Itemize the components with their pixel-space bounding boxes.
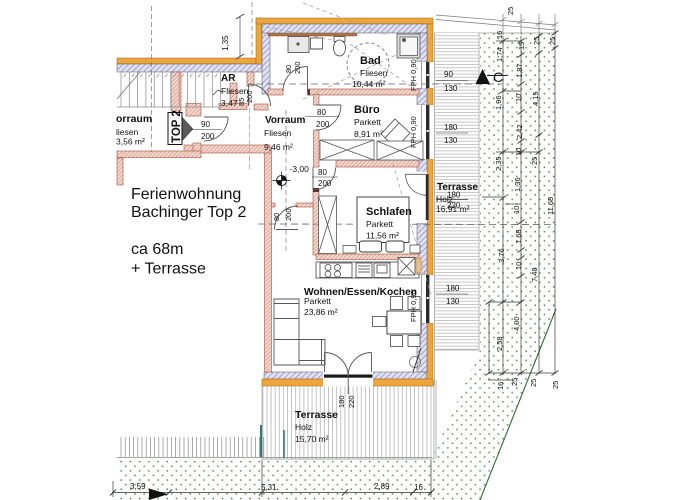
svg-text:2,58: 2,58 bbox=[495, 336, 504, 351]
svg-text:3,76: 3,76 bbox=[497, 248, 506, 263]
svg-text:10: 10 bbox=[514, 148, 523, 156]
svg-text:2,89: 2,89 bbox=[374, 482, 390, 491]
svg-text:90: 90 bbox=[201, 120, 210, 129]
svg-text:220: 220 bbox=[347, 395, 356, 408]
svg-text:4,15: 4,15 bbox=[531, 91, 540, 106]
svg-text:FPH 0,90: FPH 0,90 bbox=[409, 116, 418, 148]
svg-text:FPH 0,90: FPH 0,90 bbox=[409, 290, 418, 322]
svg-text:Ferienwohnung: Ferienwohnung bbox=[131, 186, 241, 203]
svg-text:180: 180 bbox=[446, 284, 460, 293]
svg-text:200: 200 bbox=[316, 120, 330, 129]
svg-text:25: 25 bbox=[530, 157, 539, 165]
svg-text:Fliesen: Fliesen bbox=[264, 128, 292, 138]
svg-text:Bad: Bad bbox=[360, 55, 381, 67]
svg-text:16: 16 bbox=[414, 483, 423, 492]
svg-text:Parkett: Parkett bbox=[354, 117, 382, 127]
svg-text:1,74: 1,74 bbox=[495, 47, 504, 62]
svg-text:10: 10 bbox=[514, 94, 523, 102]
svg-text:10: 10 bbox=[514, 262, 523, 270]
svg-text:2,42: 2,42 bbox=[515, 124, 524, 139]
svg-text:ca 68m: ca 68m bbox=[131, 241, 183, 258]
svg-text:Fliesen: Fliesen bbox=[360, 68, 388, 78]
svg-text:1,68: 1,68 bbox=[514, 229, 523, 244]
svg-text:90: 90 bbox=[444, 70, 453, 79]
svg-text:220: 220 bbox=[447, 201, 461, 210]
svg-text:200: 200 bbox=[293, 61, 302, 74]
svg-text:200: 200 bbox=[318, 179, 332, 188]
svg-text:15: 15 bbox=[517, 42, 526, 50]
svg-text:10: 10 bbox=[512, 206, 521, 214]
svg-text:8,91 m²: 8,91 m² bbox=[354, 129, 383, 139]
svg-text:1,36: 1,36 bbox=[513, 177, 522, 192]
svg-text:7,48: 7,48 bbox=[530, 267, 539, 282]
svg-text:4,00: 4,00 bbox=[512, 316, 521, 331]
svg-text:200: 200 bbox=[284, 208, 293, 221]
svg-text:Parkett: Parkett bbox=[366, 219, 394, 229]
svg-text:80: 80 bbox=[317, 108, 326, 117]
svg-text:25: 25 bbox=[551, 381, 560, 389]
svg-text:130: 130 bbox=[444, 84, 458, 93]
svg-text:Terrasse: Terrasse bbox=[295, 409, 338, 421]
svg-text:130: 130 bbox=[446, 297, 460, 306]
svg-text:180: 180 bbox=[337, 395, 346, 408]
svg-text:Parkett: Parkett bbox=[304, 296, 332, 306]
svg-text:80: 80 bbox=[284, 65, 293, 73]
svg-text:orraum: orraum bbox=[116, 113, 152, 125]
svg-text:2,35: 2,35 bbox=[494, 156, 503, 171]
svg-text:15,70 m²: 15,70 m² bbox=[295, 434, 329, 444]
svg-text:11,56 m²: 11,56 m² bbox=[366, 231, 399, 241]
svg-text:FPH 0,90: FPH 0,90 bbox=[409, 59, 418, 91]
svg-text:Holz: Holz bbox=[295, 422, 312, 432]
svg-text:1,87: 1,87 bbox=[515, 63, 524, 78]
svg-text:AR: AR bbox=[221, 73, 236, 84]
svg-text:130: 130 bbox=[444, 136, 458, 145]
svg-text:Bachinger Top 2: Bachinger Top 2 bbox=[131, 204, 246, 221]
svg-text:3,56 m²: 3,56 m² bbox=[116, 137, 145, 147]
svg-text:Schlafen: Schlafen bbox=[366, 206, 412, 218]
svg-text:25: 25 bbox=[506, 7, 515, 15]
svg-text:16: 16 bbox=[495, 31, 504, 39]
svg-text:80: 80 bbox=[318, 168, 327, 177]
svg-text:3,59: 3,59 bbox=[130, 482, 146, 491]
svg-text:+ Terrasse: + Terrasse bbox=[131, 261, 206, 278]
svg-text:1,35: 1,35 bbox=[221, 35, 230, 51]
svg-text:23,86 m²: 23,86 m² bbox=[304, 307, 338, 317]
svg-text:9,46 m²: 9,46 m² bbox=[264, 142, 293, 152]
svg-text:Büro: Büro bbox=[354, 104, 380, 116]
svg-text:200: 200 bbox=[245, 90, 254, 103]
svg-text:16: 16 bbox=[496, 382, 505, 390]
svg-text:80: 80 bbox=[272, 213, 281, 221]
svg-text:25: 25 bbox=[532, 37, 541, 45]
svg-text:liesen: liesen bbox=[116, 127, 138, 137]
svg-text:1,96: 1,96 bbox=[494, 95, 503, 110]
svg-text:5,31: 5,31 bbox=[261, 483, 277, 492]
svg-text:25: 25 bbox=[529, 379, 538, 387]
svg-text:3,47: 3,47 bbox=[221, 98, 238, 108]
svg-text:180: 180 bbox=[444, 123, 458, 132]
svg-text:TOP 2: TOP 2 bbox=[171, 110, 183, 143]
svg-text:-3,00: -3,00 bbox=[290, 164, 310, 174]
svg-text:Vorraum: Vorraum bbox=[265, 115, 305, 126]
svg-text:25: 25 bbox=[510, 378, 519, 386]
svg-text:180: 180 bbox=[447, 191, 461, 200]
svg-text:C: C bbox=[493, 69, 503, 85]
svg-text:11,68: 11,68 bbox=[546, 197, 555, 215]
svg-text:25: 25 bbox=[548, 37, 557, 45]
